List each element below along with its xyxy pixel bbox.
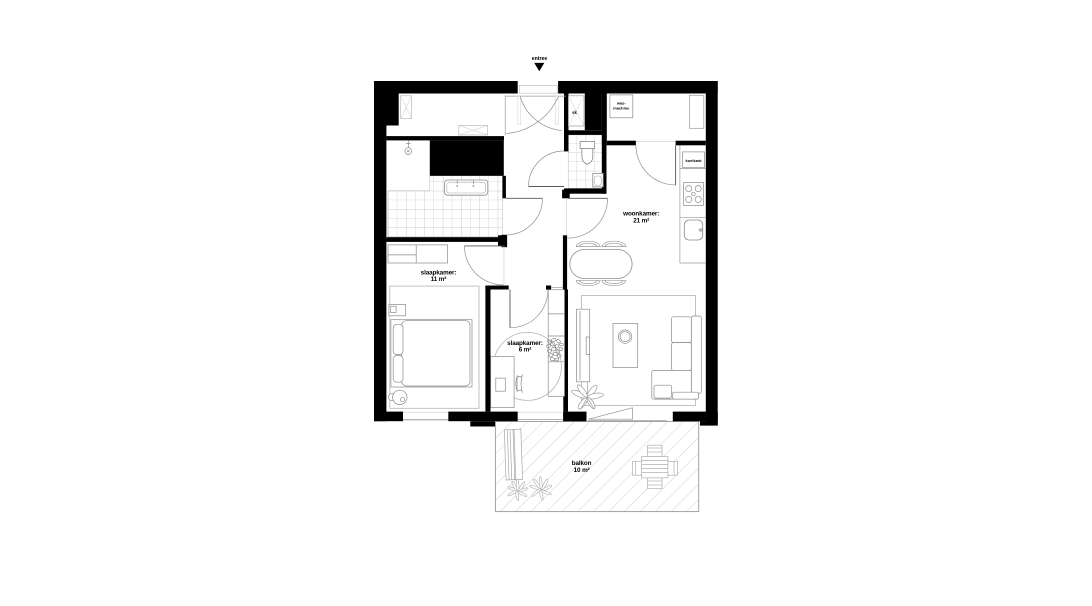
svg-text:koelkast: koelkast bbox=[685, 158, 702, 163]
svg-text:6 m²: 6 m² bbox=[519, 347, 532, 354]
svg-text:11 m²: 11 m² bbox=[431, 276, 447, 283]
svg-text:21 m²: 21 m² bbox=[633, 218, 649, 225]
svg-text:entree: entree bbox=[532, 56, 548, 62]
svg-text:sk: sk bbox=[572, 110, 577, 115]
svg-text:machine: machine bbox=[613, 106, 630, 111]
svg-text:10 m²: 10 m² bbox=[574, 467, 590, 474]
